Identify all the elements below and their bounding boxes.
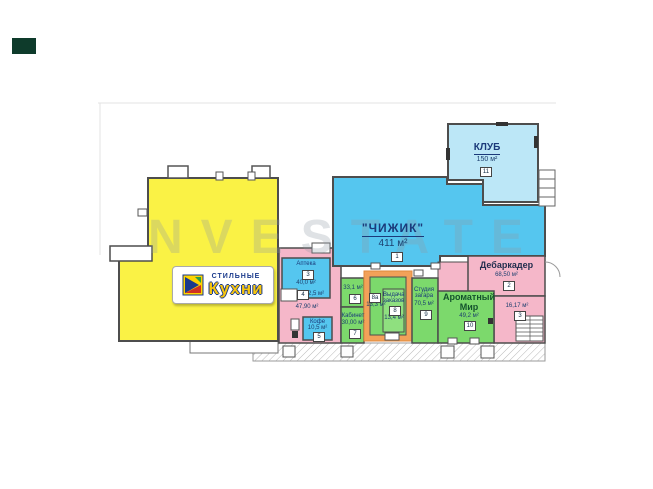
brand-logo-icon [182,274,204,296]
corridor-area: 47,90 м² [287,304,327,310]
aromatny-mir-number: 10 [464,321,476,331]
solarium-label: Студия загара [405,287,443,299]
corner-block [12,38,36,54]
solarium-area: 70,5 м² [405,301,443,307]
cabinet-label: Кабинет [340,313,366,319]
counter-icon [385,333,399,340]
cabinet-number: 7 [349,329,361,339]
closet-number: 4 [297,290,309,300]
klub-number: 11 [480,167,492,177]
door-swing-icon [545,262,560,277]
aromatny-mir-label: Ароматный Мир [440,292,498,312]
kofe-area: 10,5 м² [301,325,334,331]
sidewalk-hatch [253,343,545,361]
unit8-number: 8 [389,306,401,316]
apteka-label: Аптека [284,261,328,267]
debarkader-number: 2 [503,281,515,291]
entrance-ramp [190,341,278,353]
apteka-number: 3 [302,270,314,280]
klub-label: КЛУБ [459,142,515,153]
cabinet-area: 30,00 м² [338,320,368,326]
chizhik-label: "ЧИЖИК" [348,221,438,235]
brand-logo[interactable]: СТИЛЬНЫЕ Кухни [172,266,274,304]
closet-area: 2,5 м² [308,291,332,297]
unit6-area: 33,1 м² [338,285,368,291]
unit6-number: 6 [349,294,361,304]
unit8a-number: 8а [369,293,381,303]
entrance-notch [110,246,152,261]
balcony-ladder-icon [539,170,555,206]
chizhik-area: 411 м² [348,238,438,249]
apteka-area: 40,0 м² [284,280,328,286]
klub-area: 150 м² [459,156,515,163]
stairs-room-area: 16,17 м² [494,303,540,309]
aromatny-mir-area: 49,2 м² [440,313,498,319]
debarkader-label: Дебаркадер [470,260,543,270]
solarium-number: 9 [420,310,432,320]
stairs-room-number: 3 [514,311,526,321]
debarkader-area: 68,50 м² [470,272,543,278]
floor-plan-canvas: NVESTATE СТИЛЬНЫЕ Кухни "ЧИЖИК" 411 м² 1… [0,0,653,489]
floor-plan-shapes [0,0,653,489]
brand-main-text: Кухни [208,280,263,297]
kofe-number: 5 [313,332,325,342]
unit-closet-region[interactable] [281,289,297,301]
chizhik-number: 1 [391,252,403,262]
unit8-label: Выдача заказов [383,292,404,304]
